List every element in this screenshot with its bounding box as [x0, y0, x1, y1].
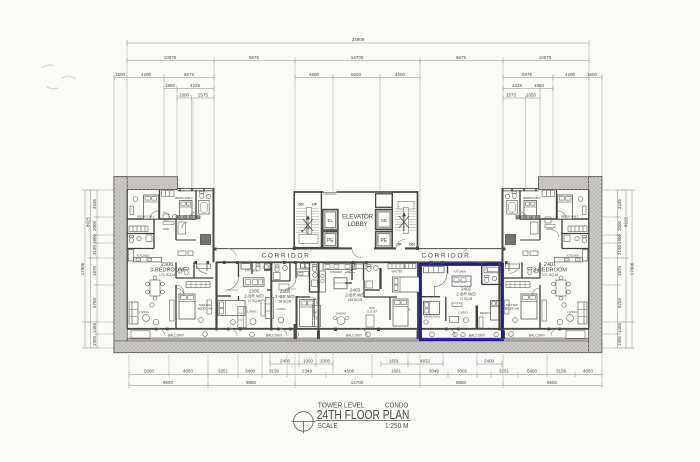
svg-text:3251: 3251	[218, 369, 229, 374]
svg-text:14700: 14700	[351, 55, 364, 60]
svg-text:1850: 1850	[534, 83, 545, 88]
svg-text:2575: 2575	[198, 93, 209, 98]
svg-text:4600: 4600	[395, 72, 406, 77]
svg-text:3158: 3158	[269, 369, 280, 374]
svg-text:3002: 3002	[457, 369, 468, 374]
svg-text:3190: 3190	[92, 244, 97, 255]
svg-text:24TH FLOOR PLAN: 24TH FLOOR PLAN	[317, 407, 410, 422]
svg-text:1850: 1850	[165, 83, 176, 88]
svg-text:17906: 17906	[80, 262, 85, 275]
svg-text:UP: UP	[397, 243, 403, 247]
svg-text:PE: PE	[380, 238, 387, 244]
svg-text:CLOSET: CLOSET	[367, 309, 378, 313]
svg-text:3190: 3190	[617, 244, 622, 255]
svg-text:34908: 34908	[352, 37, 365, 42]
svg-text:5750: 5750	[617, 297, 622, 308]
svg-text:BEDROOM 1: BEDROOM 1	[137, 214, 155, 218]
svg-text:1905: 1905	[617, 335, 622, 346]
svg-text:5400: 5400	[527, 369, 538, 374]
svg-text:LIVING: LIVING	[247, 310, 256, 314]
svg-text:DN: DN	[298, 203, 304, 207]
svg-text:1000: 1000	[303, 359, 314, 364]
svg-text:1875: 1875	[617, 265, 622, 276]
svg-text:LIVING: LIVING	[276, 307, 285, 311]
svg-text:171 SQ.M: 171 SQ.M	[542, 273, 558, 277]
svg-text:8925: 8925	[86, 216, 91, 227]
svg-text:DRS: DRS	[369, 306, 375, 310]
svg-text:5500: 5500	[351, 72, 362, 77]
svg-text:3435: 3435	[617, 198, 622, 209]
svg-text:LIVING: LIVING	[139, 310, 149, 314]
svg-text:BEDROOM: BEDROOM	[198, 307, 213, 311]
svg-text:1800: 1800	[179, 93, 190, 98]
svg-text:BEDROOM 2: BEDROOM 2	[523, 196, 541, 200]
svg-text:3158: 3158	[556, 369, 567, 374]
svg-text:1500: 1500	[115, 72, 126, 77]
svg-text:BALCONY: BALCONY	[168, 334, 185, 338]
svg-text:9650: 9650	[547, 380, 558, 385]
svg-text:3049: 3049	[429, 369, 440, 374]
svg-text:1000: 1000	[320, 359, 331, 364]
svg-text:BEDROOM 2: BEDROOM 2	[424, 315, 441, 319]
svg-text:SE: SE	[381, 218, 387, 223]
svg-text:4600: 4600	[309, 72, 320, 77]
svg-text:2-BR WD: 2-BR WD	[345, 293, 365, 298]
svg-text:BEDROOM 1: BEDROOM 1	[561, 214, 579, 218]
svg-text:2-BR WD: 2-BR WD	[244, 294, 264, 299]
svg-text:KITCHEN: KITCHEN	[567, 253, 580, 257]
svg-text:1850: 1850	[526, 93, 537, 98]
svg-text:5675: 5675	[184, 72, 195, 77]
svg-text:MASTER: MASTER	[392, 270, 403, 274]
svg-text:3400: 3400	[245, 369, 256, 374]
svg-text:17906: 17906	[630, 262, 635, 275]
svg-text:KITCHEN: KITCHEN	[330, 270, 342, 274]
svg-text:BALCONY: BALCONY	[266, 334, 283, 338]
svg-text:1-BR WD: 1-BR WD	[275, 294, 295, 299]
svg-text:BALCONY: BALCONY	[529, 334, 546, 338]
svg-text:1500: 1500	[587, 72, 598, 77]
svg-text:1651: 1651	[391, 369, 402, 374]
svg-text:5000: 5000	[144, 369, 155, 374]
svg-text:UP: UP	[312, 203, 318, 207]
svg-text:PE: PE	[327, 238, 334, 244]
svg-text:SCALE: SCALE	[318, 423, 338, 430]
svg-text:BALCONY: BALCONY	[346, 334, 363, 338]
svg-text:MAID: MAID	[163, 227, 170, 231]
svg-text:10075: 10075	[539, 55, 552, 60]
svg-text:ELEVATOR: ELEVATOR	[342, 214, 374, 221]
svg-text:9675: 9675	[456, 55, 467, 60]
svg-text:LIVING: LIVING	[567, 310, 577, 314]
svg-text:CORRIDOR: CORRIDOR	[422, 253, 471, 260]
svg-text:4200: 4200	[141, 72, 152, 77]
svg-text:135 SQ.M: 135 SQ.M	[348, 298, 363, 302]
svg-text:3251: 3251	[499, 369, 510, 374]
svg-text:9650: 9650	[163, 380, 174, 385]
svg-text:1601: 1601	[389, 359, 400, 364]
svg-text:DN: DN	[409, 243, 415, 247]
svg-text:4832: 4832	[420, 359, 431, 364]
svg-text:EL: EL	[327, 218, 333, 223]
svg-text:CORRIDOR: CORRIDOR	[262, 253, 311, 260]
svg-text:71 SQ.M: 71 SQ.M	[248, 299, 261, 303]
svg-text:5875: 5875	[522, 72, 533, 77]
svg-text:4650: 4650	[183, 369, 194, 374]
svg-text:4225: 4225	[512, 83, 523, 88]
svg-text:2-BR WD: 2-BR WD	[456, 292, 476, 297]
svg-text:9650: 9650	[246, 380, 257, 385]
svg-text:3435: 3435	[92, 198, 97, 209]
svg-text:171 SQ.M: 171 SQ.M	[159, 273, 175, 277]
svg-text:2400: 2400	[484, 359, 495, 364]
svg-text:BEDROOM 2: BEDROOM 2	[175, 196, 193, 200]
svg-text:1875: 1875	[92, 265, 97, 276]
svg-text:54 SQ.M: 54 SQ.M	[279, 299, 292, 303]
svg-text:1485: 1485	[92, 322, 97, 333]
svg-text:1:250 M: 1:250 M	[385, 423, 409, 430]
svg-text:9575: 9575	[249, 55, 260, 60]
svg-text:KITCHEN: KITCHEN	[297, 267, 309, 271]
svg-text:DINING: DINING	[336, 312, 346, 316]
svg-text:4200: 4200	[565, 72, 576, 77]
svg-text:1905: 1905	[92, 335, 97, 346]
svg-text:BALCONY: BALCONY	[469, 334, 486, 338]
svg-text:14700: 14700	[351, 380, 364, 385]
svg-text:5750: 5750	[92, 297, 97, 308]
svg-text:4225: 4225	[190, 83, 201, 88]
svg-text:LOBBY: LOBBY	[347, 221, 368, 228]
svg-text:KITCHEN: KITCHEN	[454, 269, 466, 273]
svg-text:2000: 2000	[92, 220, 97, 231]
svg-text:4650: 4650	[583, 369, 594, 374]
svg-text:2349: 2349	[302, 369, 313, 374]
svg-text:BEDROOM: BEDROOM	[505, 307, 520, 311]
svg-text:1485: 1485	[617, 322, 622, 333]
svg-text:9650: 9650	[456, 380, 467, 385]
svg-text:LIVING: LIVING	[458, 310, 467, 314]
svg-text:1575: 1575	[506, 93, 517, 98]
svg-text:KITCHEN: KITCHEN	[137, 253, 150, 257]
svg-text:71 SQ.M: 71 SQ.M	[460, 297, 473, 301]
svg-text:2000: 2000	[617, 220, 622, 231]
svg-text:10075: 10075	[164, 55, 177, 60]
svg-text:2400: 2400	[280, 359, 291, 364]
svg-text:8925: 8925	[624, 216, 629, 227]
svg-text:4508: 4508	[344, 369, 355, 374]
